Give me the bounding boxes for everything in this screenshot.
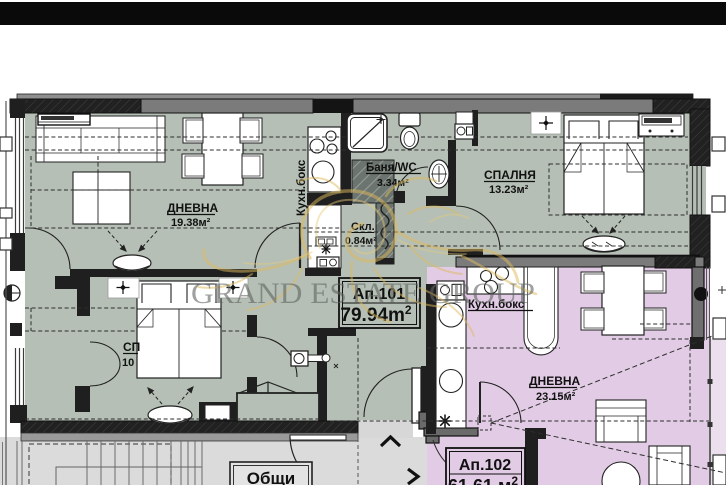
- svg-text:Кухн.бокс: Кухн.бокс: [296, 159, 308, 216]
- svg-text:13.23м²: 13.23м²: [489, 184, 529, 196]
- svg-text:ДНЕВНА: ДНЕВНА: [529, 374, 581, 388]
- svg-text:ДНЕВНА: ДНЕВНА: [167, 201, 219, 215]
- svg-text:Общи: Общи: [247, 469, 296, 485]
- svg-text:61.61 м2: 61.61 м2: [448, 474, 518, 485]
- svg-text:СП: СП: [123, 340, 140, 354]
- svg-text:GRAND ESTATE GROUP: GRAND ESTATE GROUP: [191, 277, 535, 310]
- svg-text:19.38м²: 19.38м²: [171, 217, 211, 229]
- svg-text:Баня/WC: Баня/WC: [366, 162, 417, 174]
- svg-text:СПАЛНЯ: СПАЛНЯ: [484, 168, 536, 182]
- svg-text:0.84м²: 0.84м²: [345, 235, 377, 247]
- svg-text:23.15м²: 23.15м²: [536, 391, 576, 403]
- svg-text:10: 10: [122, 357, 134, 369]
- svg-text:Ап.102: Ап.102: [459, 457, 511, 474]
